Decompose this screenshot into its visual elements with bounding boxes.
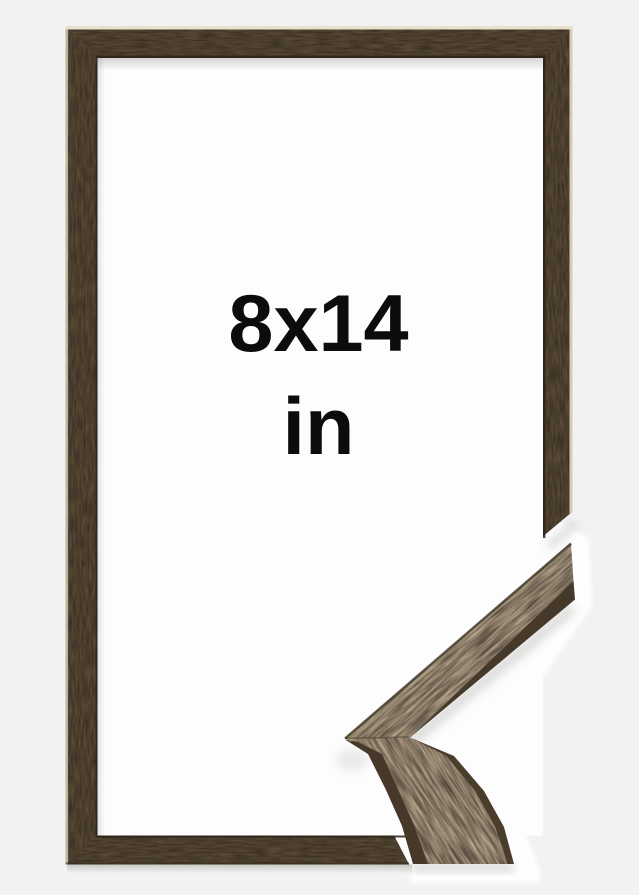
svg-text:8x14: 8x14	[228, 279, 408, 369]
svg-text:in: in	[283, 382, 355, 472]
